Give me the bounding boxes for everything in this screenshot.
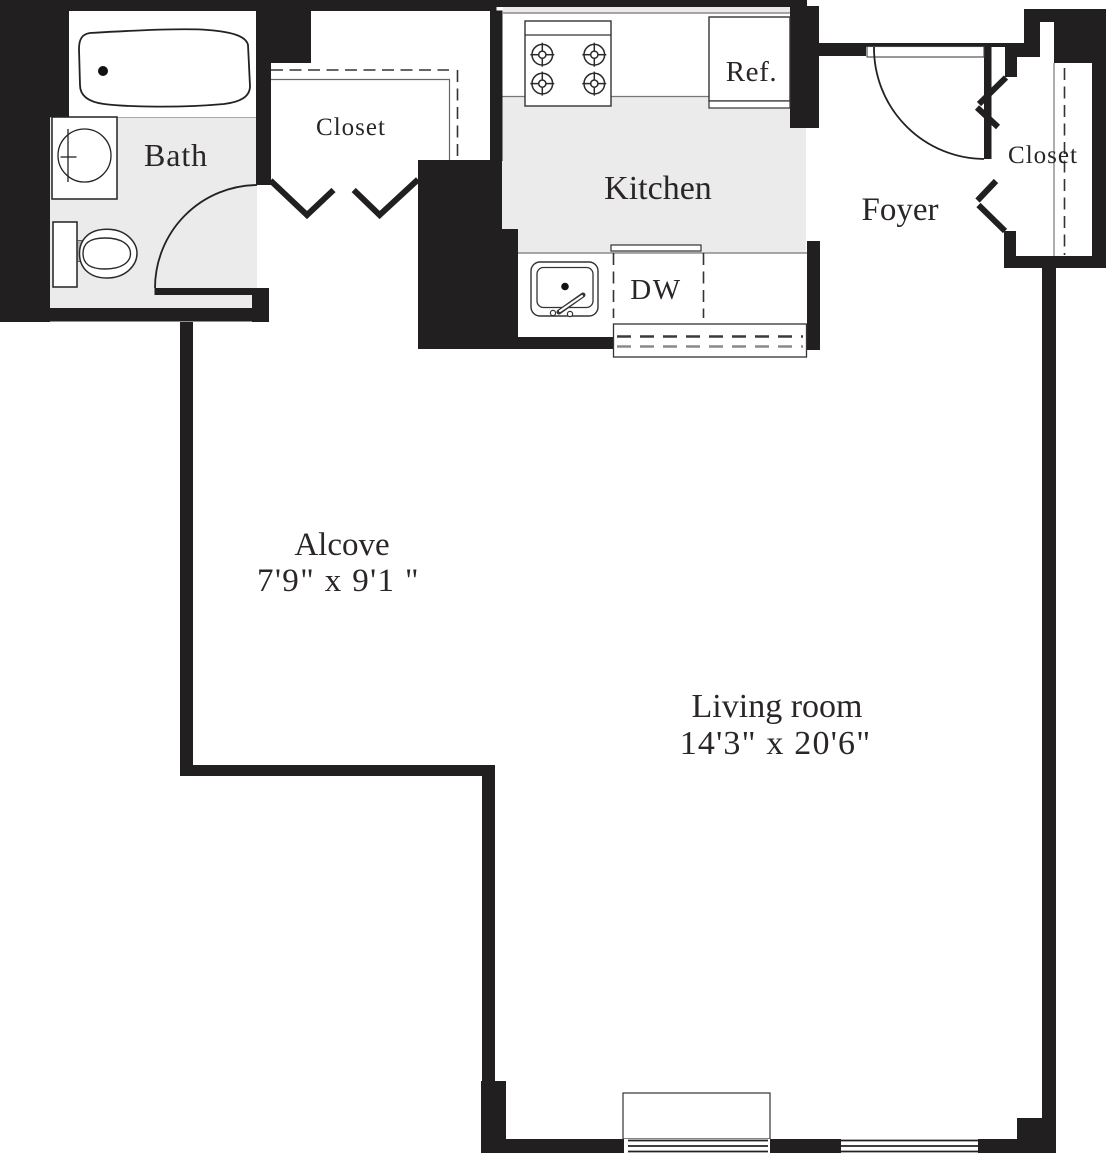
svg-text:Closet: Closet bbox=[1008, 142, 1078, 169]
svg-text:Closet: Closet bbox=[316, 114, 386, 141]
svg-text:Foyer: Foyer bbox=[862, 192, 939, 228]
svg-text:Ref.: Ref. bbox=[726, 56, 778, 88]
svg-text:Alcove: Alcove bbox=[294, 527, 389, 563]
svg-text:14'3" x 20'6": 14'3" x 20'6" bbox=[680, 725, 872, 762]
svg-text:Bath: Bath bbox=[144, 137, 208, 173]
svg-text:Living room: Living room bbox=[692, 688, 863, 725]
svg-text:Kitchen: Kitchen bbox=[604, 170, 712, 207]
svg-text:7'9" x 9'1 ": 7'9" x 9'1 " bbox=[257, 563, 420, 599]
svg-text:DW: DW bbox=[630, 274, 682, 306]
